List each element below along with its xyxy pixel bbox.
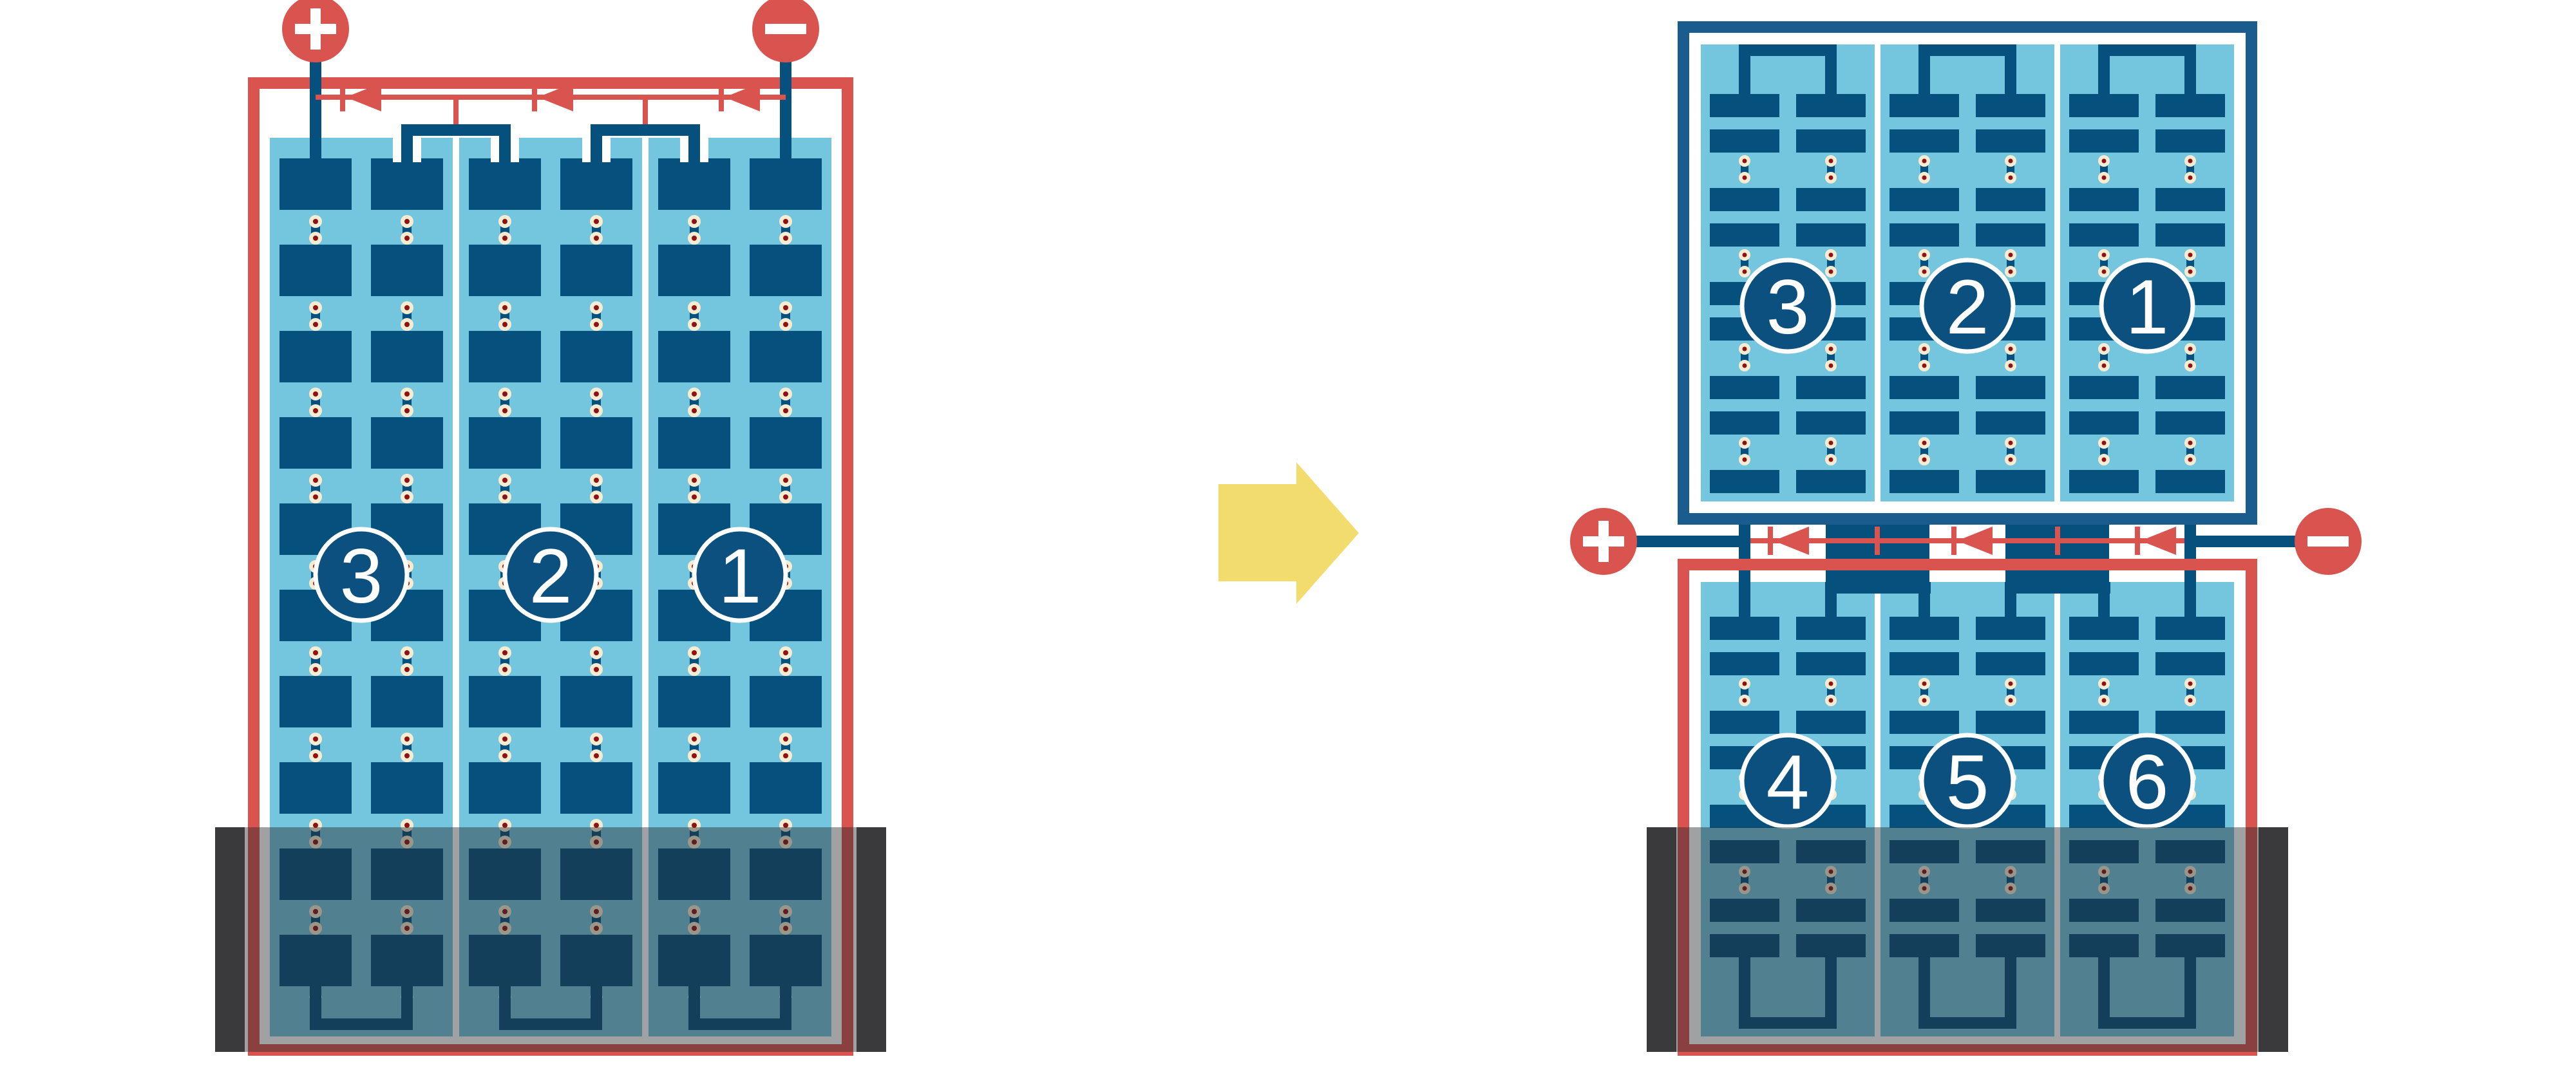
positive-terminal xyxy=(282,0,349,62)
section-badge: 2 xyxy=(505,529,596,621)
shade-overlay xyxy=(1647,827,2288,1052)
bypass-diode-icon xyxy=(1768,527,1809,555)
section-badge: 4 xyxy=(1742,735,1833,827)
section-badge: 5 xyxy=(1922,735,2013,827)
section-label: 4 xyxy=(1766,739,1810,825)
bypass-diode-line xyxy=(1750,527,2184,555)
negative-post xyxy=(780,58,791,161)
section-label: 3 xyxy=(1766,264,1810,350)
bypass-diode-icon xyxy=(1951,527,1993,555)
section-label: 2 xyxy=(529,533,573,619)
section-label: 5 xyxy=(1946,739,1989,825)
shade-side-bar xyxy=(215,827,245,1052)
strip-divider xyxy=(2054,44,2060,501)
section-label: 1 xyxy=(2126,264,2169,350)
bypass-diode-line xyxy=(316,83,786,124)
minus-icon xyxy=(2307,536,2349,547)
top-panel: 3 2 1 xyxy=(1683,27,2251,548)
section-badge: 1 xyxy=(2101,260,2193,351)
section-badge: 2 xyxy=(1922,260,2013,351)
shade-side-bar xyxy=(857,827,886,1052)
bypass-diode-icon xyxy=(2135,527,2176,555)
transition-arrow xyxy=(1218,462,1359,604)
section-label: 2 xyxy=(1946,264,1989,350)
section-label: 3 xyxy=(340,533,383,619)
section-label: 6 xyxy=(2126,739,2169,825)
solar-panel-wiring-diagram: 3 2 1 xyxy=(0,0,2576,1068)
shade-side-bar xyxy=(2259,827,2288,1052)
section-badge: 3 xyxy=(1742,260,1833,351)
split-panel-diagram: 3 2 1 xyxy=(1570,27,2362,1052)
single-panel-diagram: 3 2 1 xyxy=(215,0,886,1052)
negative-lead xyxy=(2190,536,2296,547)
positive-lead xyxy=(1636,536,1745,547)
positive-post xyxy=(310,58,321,161)
right-arrow-icon xyxy=(1218,462,1359,604)
minus-icon xyxy=(765,24,806,34)
positive-terminal xyxy=(1570,508,1637,575)
section-badge: 3 xyxy=(316,529,407,621)
shade-side-bar xyxy=(1647,827,1676,1052)
section-label: 1 xyxy=(719,533,762,619)
negative-terminal xyxy=(752,0,819,62)
section-badge: 1 xyxy=(694,529,786,621)
strip-divider xyxy=(1875,44,1880,501)
diagram-canvas: 3 2 1 xyxy=(0,0,2576,1068)
negative-terminal xyxy=(2295,508,2362,575)
shade-overlay xyxy=(215,827,886,1052)
section-badge: 6 xyxy=(2101,735,2193,827)
